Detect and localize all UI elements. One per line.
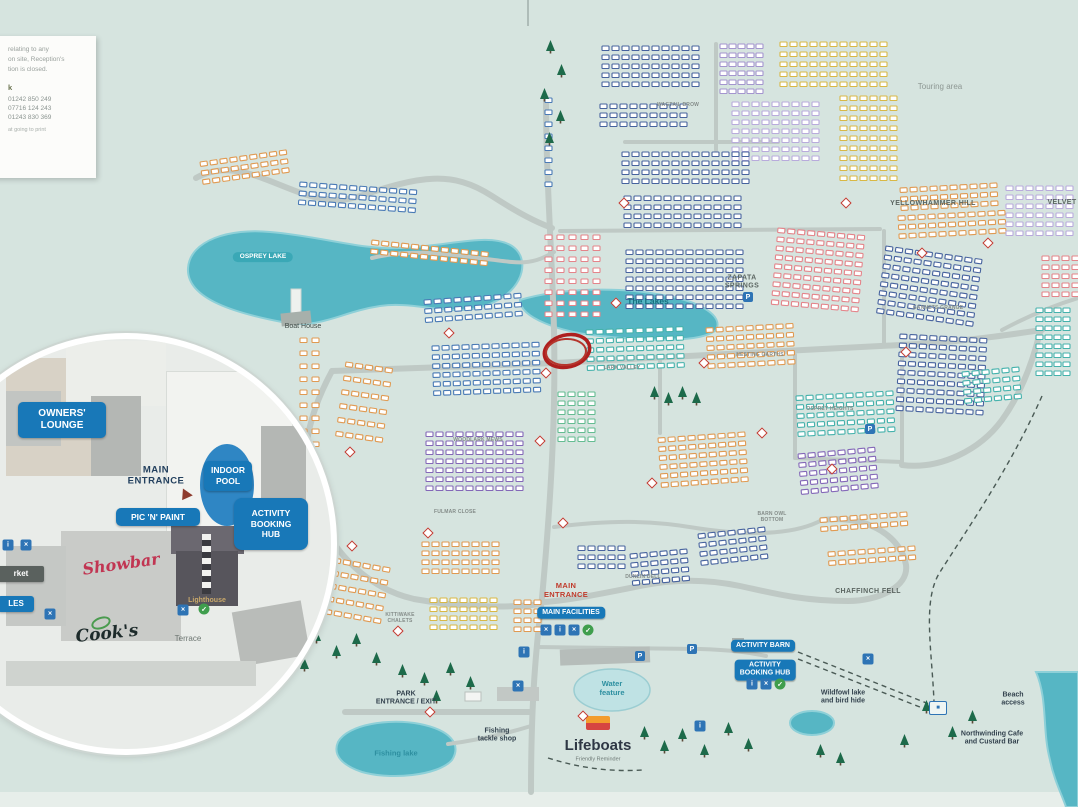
inset-path: [6, 661, 256, 686]
map-label: Wildfowl lake and bird hide: [821, 690, 865, 707]
info-line: tion is closed.: [8, 66, 88, 73]
info-phone: 01243 830 369: [8, 114, 88, 121]
facility-icon: ×: [569, 625, 580, 636]
check-icon: ✓: [583, 625, 594, 636]
facility-icon: ×: [21, 540, 32, 551]
terrace-label: Terrace: [175, 634, 202, 644]
map-label: NESTING GARTHS: [736, 352, 784, 358]
parking-icon: P: [865, 424, 875, 434]
map-label: WOODLARK MEWS: [453, 437, 503, 443]
map-label: DUNLIN DELL: [625, 574, 661, 580]
parking-icon: P: [687, 644, 697, 654]
map-label: BARN OWL BOTTOM: [757, 511, 786, 523]
facility-icon: ×: [863, 654, 874, 665]
pic-n-paint-label: PIC 'N' PAINT: [116, 508, 200, 526]
map-label: PARK ENTRANCE / EXIT: [376, 691, 436, 708]
map-label: Northwinding Cafe and Custard Bar: [961, 731, 1023, 748]
parking-icon: P: [635, 651, 645, 661]
indoor-pool-label: INDOOR POOL: [204, 461, 252, 491]
map-label: Boat House: [285, 323, 322, 331]
lighthouse-tower: [202, 534, 211, 594]
check-icon: ✓: [775, 679, 786, 690]
facility-icon: i: [519, 647, 530, 658]
map-label: Beach access: [1001, 692, 1024, 709]
lifeboats-logo-bottom: [586, 723, 610, 730]
facility-icon: ×: [45, 609, 56, 620]
map-label: Water feature: [599, 679, 624, 697]
map-label: Touring area: [918, 82, 962, 92]
map-label: Fishing lake: [374, 749, 417, 758]
map-label: Lifeboats: [565, 737, 632, 755]
facility-icon: ×: [178, 605, 189, 616]
parking-icon: P: [743, 292, 753, 302]
facility-icon: ×: [541, 625, 552, 636]
map-label: ACTIVITY BOOKING HUB: [735, 660, 796, 681]
info-phone: 07716 124 243: [8, 105, 88, 112]
map-label: WAGTAIL BROW: [657, 102, 699, 108]
info-footer: at going to print: [8, 127, 88, 133]
map-label: FULMAR CLOSE: [434, 509, 476, 515]
map-label: GANNETS GRANGE: [913, 305, 964, 311]
map-label: KITTIWAKE CHALETS: [385, 612, 414, 624]
inset-terrace-block: [232, 600, 310, 666]
map-label: MAIN FACILITIES: [537, 607, 605, 619]
map-label: VELVET: [1047, 199, 1076, 207]
map-label: CHAFFINCH FELL: [835, 588, 901, 596]
activity-booking-hub-label: ACTIVITY BOOKING HUB: [234, 498, 308, 550]
cliff-lift-icon: ■: [929, 701, 947, 715]
map-label: OSPREY LAKE: [233, 252, 293, 262]
map-label: LARK VALLEY: [604, 365, 641, 371]
owners-lounge-label: OWNERS' LOUNGE: [18, 402, 106, 438]
facility-icon: ×: [761, 679, 772, 690]
facility-icon: i: [555, 625, 566, 636]
info-line: relating to any: [8, 46, 88, 53]
map-label: YELLOWHAMMER HILL: [890, 200, 976, 208]
market-label: rket: [0, 566, 44, 582]
map-label: Friendly Reminder: [576, 757, 621, 764]
map-label: The Lakes: [627, 296, 669, 306]
map-label: ACTIVITY BARN: [731, 640, 795, 652]
facility-icon: i: [695, 721, 706, 732]
info-card: relating to any on site, Reception's tio…: [0, 36, 96, 178]
info-phone: 01242 850 249: [8, 96, 88, 103]
map-label: OSPREY HEIGHTS: [806, 406, 853, 412]
map-label: ZAPATA SPRINGS: [725, 275, 759, 292]
facility-icon: ×: [513, 681, 524, 692]
facility-icon: i: [747, 679, 758, 690]
facility-icon: i: [3, 540, 14, 551]
check-icon: ✓: [199, 604, 210, 615]
map-label: MAIN ENTRANCE: [544, 581, 588, 599]
holiday-park-map-page: Touring areaYELLOWHAMMER HILLVELVETZAPAT…: [0, 0, 1078, 807]
info-heading: k: [8, 83, 88, 92]
info-line: on site, Reception's: [8, 56, 88, 63]
lifeboats-logo-top: [586, 716, 610, 723]
ales-label: LES: [0, 596, 34, 612]
main-entrance-inset-label: MAIN ENTRANCE: [128, 465, 185, 488]
map-label: Fishing tackle shop: [478, 728, 517, 745]
inset-building-left-block: [6, 546, 66, 626]
lifeboats-logo: [586, 716, 610, 730]
